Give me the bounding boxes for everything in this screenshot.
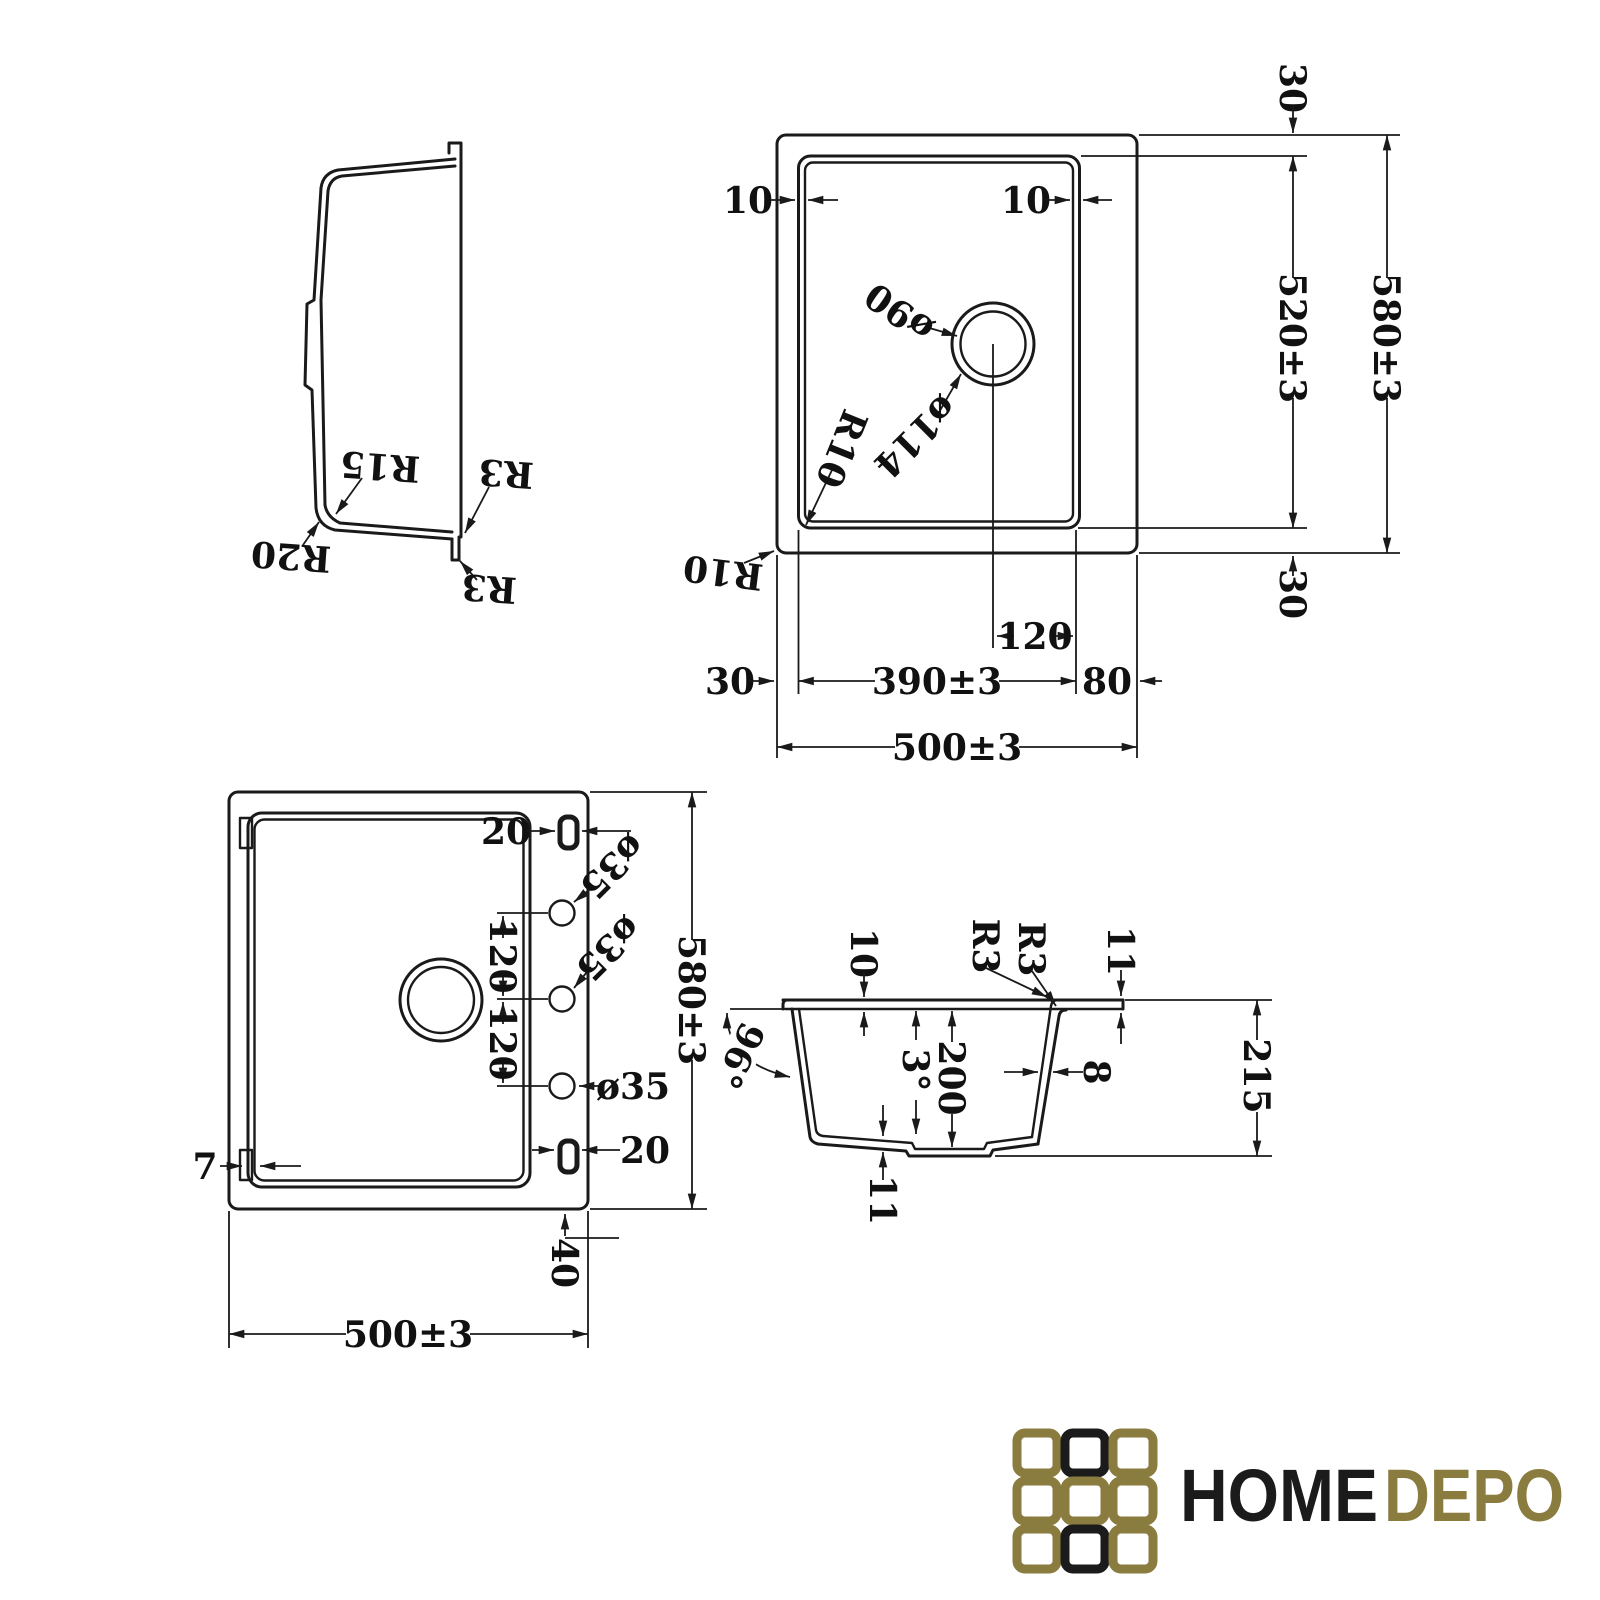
logo-text-primary: HOME [1180,1454,1378,1537]
dim-overall-depth-label: 580±3 [1365,273,1407,403]
logo-tile [1017,1433,1057,1473]
dim-bowl-corner-label: R10 [807,404,876,494]
dim-radius-outer-label: R3 [964,919,1006,974]
dim-clip-top-label: 20 [481,811,531,853]
dim-tap-hole-3-label: ø35 [596,1066,670,1108]
dim-overall-depth-bottom-label: 580±3 [670,935,712,1065]
dim-r3-edge-label: R3 [477,450,535,496]
drawing-canvas: R15 R20 R3 R3 10 10 ø90 ø114 R10 R10 [0,0,1600,1600]
bowl-outline-outer [248,813,530,1187]
logo-tile [1065,1529,1105,1569]
dim-margin-top-label: 30 [1271,63,1313,113]
dim-draft-angle-label: 3° [894,1048,936,1091]
dim-overall-height-label: 215 [1235,1038,1277,1113]
dim-bowl-depth-label: 520±3 [1271,273,1313,403]
dim-flange-thickness-label: 11 [1099,926,1141,976]
dim-spacing2-label: 120 [481,1005,523,1080]
dim-overall-width-bottom-label: 500±3 [343,1314,473,1356]
dim-overall-width-label: 500±3 [892,727,1022,769]
clip-slot-bottom [560,1141,577,1172]
dim-drain-hole-label: ø90 [857,274,942,351]
dim-r20-label: R20 [250,532,333,579]
dim-drain-offset-label: 120 [997,616,1072,658]
side-profile-view: R15 R20 R3 R3 [250,143,535,611]
dim-margin-right-label: 80 [1082,661,1132,703]
dim-margin-bottom-label: 30 [1271,569,1313,619]
dim-drain-flange-label: ø114 [865,386,965,486]
profile-top-lip [449,143,461,158]
logo-tile [1017,1481,1057,1521]
leader-r3-edge [465,487,489,533]
logo-text-secondary: DEPO [1384,1454,1564,1537]
logo-tile [1065,1433,1105,1473]
dim-spacing1-label: 120 [481,918,523,993]
tap-hole-1 [550,901,575,926]
tap-hole-3 [550,1074,575,1099]
logo-tile [1017,1529,1057,1569]
dim-rim-width-label: 7 [192,1146,217,1188]
brand-logo: HOME DEPO [1017,1433,1564,1569]
dim-corner-angle-label: 96° [706,1016,773,1095]
dim-r3-lip-label: R3 [460,565,518,611]
drain-hole-circle-bottom [408,967,474,1033]
dim-outer-corner-label: R10 [681,546,766,597]
logo-tile [1065,1481,1105,1521]
clip-slot-top [560,817,577,848]
technical-drawing-page: R15 R20 R3 R3 10 10 ø90 ø114 R10 R10 [0,0,1600,1600]
profile-bottom-lip [452,537,459,560]
dim-bowl-width-label: 390±3 [872,661,1002,703]
dim-radius-inner-label: R3 [1010,922,1052,977]
logo-grid-icon [1017,1433,1153,1569]
section-left-edge [783,1000,787,1009]
sink-outer-edge [777,135,1137,553]
section-right-wall-inner [1032,1000,1058,1137]
logo-tile [1113,1433,1153,1473]
dim-margin-left-label: 30 [705,661,755,703]
dim-rim-left-label: 10 [723,180,773,222]
clip-left-bottom [240,1150,252,1180]
dim-r15-label: R15 [339,442,422,489]
dim-rim-height-label: 10 [842,928,884,978]
top-plan-view: 10 10 ø90 ø114 R10 R10 30 520±3 580±3 30 [681,63,1407,769]
tap-hole-2 [550,987,575,1012]
dim-wall-thickness-label: 8 [1075,1059,1117,1084]
logo-tile [1113,1529,1153,1569]
logo-tile [1113,1481,1153,1521]
section-left-wall-inner [799,1009,823,1136]
bottom-plan-view: 120 120 ø35 ø35 ø35 20 20 7 580±3 40 [192,792,712,1356]
dim-rim-right-label: 10 [1001,180,1051,222]
dim-base-offset-label: 40 [543,1238,585,1288]
section-right-wall-outer [1038,1010,1066,1144]
dim-bowl-depth-section-label: 200 [930,1040,972,1115]
dim-tap-hole-2-label: ø35 [567,907,649,989]
dim-bottom-thickness-label: 11 [861,1175,903,1225]
drain-boss-circle [400,959,482,1041]
dim-clip-bottom-label: 20 [620,1130,670,1172]
section-view: 10 R3 R3 11 96° 3° 200 8 215 11 [706,919,1277,1226]
